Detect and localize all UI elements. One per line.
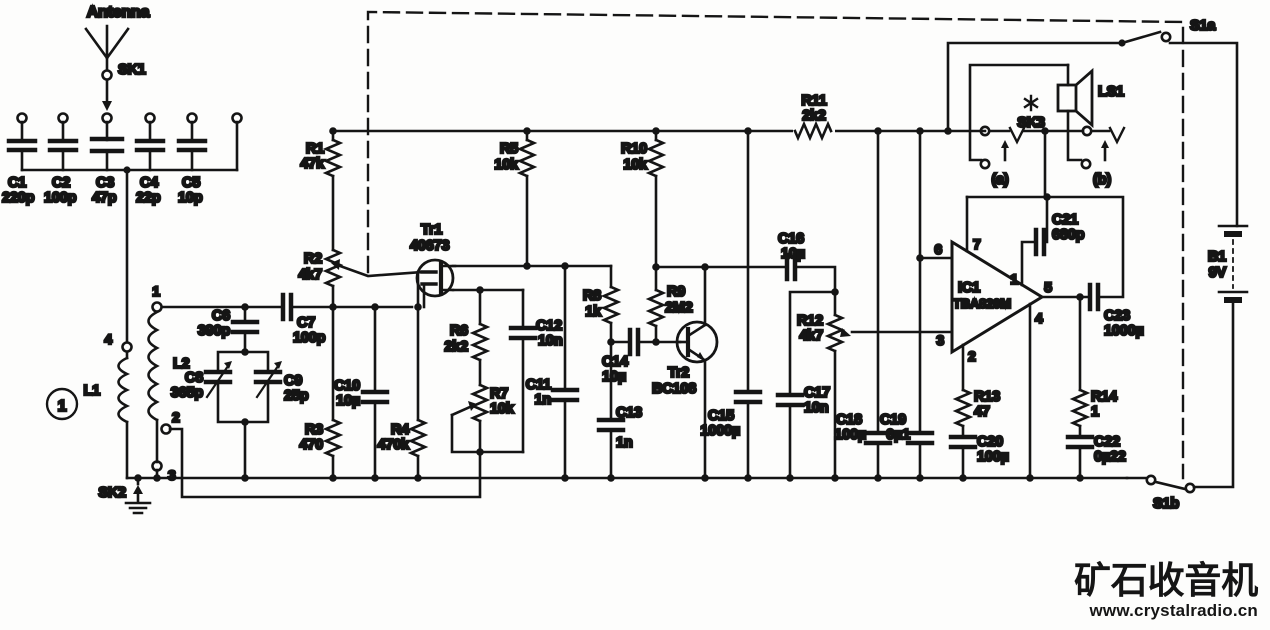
resistor-r9 <box>649 267 663 342</box>
c22-label: C22 <box>1094 434 1120 450</box>
r7-value: 10k <box>490 401 515 417</box>
c18-value: 100µ <box>834 427 866 443</box>
r4-label: R4 <box>391 422 409 438</box>
ic1-pin7: 7 <box>973 236 981 252</box>
c16-value: 10µ <box>781 246 805 262</box>
r6-label: R6 <box>450 323 468 339</box>
r7-label: R7 <box>490 386 508 402</box>
r2-value: 4k7 <box>298 267 322 283</box>
c7-label: C7 <box>297 315 315 331</box>
cap-c23 <box>1090 285 1098 309</box>
c12-label: C12 <box>536 318 562 334</box>
c2-value: 100p <box>44 190 77 206</box>
r13-value: 47 <box>974 404 990 420</box>
varicap-box-c8-c9 <box>206 352 282 478</box>
resistor-r2-pot <box>326 250 422 307</box>
r11-label: R11 <box>801 93 826 109</box>
c6-label: C6 <box>212 308 230 324</box>
c14-value: 10µ <box>602 369 626 385</box>
r8-value: 1k <box>585 304 602 320</box>
r3-label: R3 <box>305 422 323 438</box>
resistor-r12-pot <box>828 315 952 478</box>
c15-label: C15 <box>708 408 734 424</box>
l2-terminal-1: 1 <box>152 283 160 299</box>
r10-value: 10k <box>623 157 648 173</box>
c10-label: C10 <box>334 378 360 394</box>
c4-value: 22p <box>136 190 161 206</box>
c2-label: C2 <box>52 175 70 191</box>
c5-value: 10p <box>178 190 203 206</box>
c11-label: C11 <box>526 377 551 393</box>
r5-value: 10k <box>494 157 519 173</box>
l1-terminal-4: 4 <box>104 331 112 347</box>
resistor-r6 <box>473 290 487 385</box>
c21-value: 680p <box>1052 227 1085 243</box>
c19-value: 0µ1 <box>886 427 910 443</box>
tr2-label: Tr2 <box>668 365 689 381</box>
ic1-label: IC1 <box>958 280 980 296</box>
resistor-r7-pot <box>452 385 523 452</box>
cap-c11 <box>553 266 577 478</box>
r4-value: 470k <box>378 437 411 453</box>
ic1-pin3: 3 <box>936 332 944 348</box>
cap-c20 <box>951 437 975 478</box>
cap-c22 <box>1068 437 1092 478</box>
sk1-label: SK1 <box>118 62 146 78</box>
c21-label: C21 <box>1052 212 1078 228</box>
c14-label: C14 <box>602 354 628 370</box>
c10-value: 10µ <box>336 393 360 409</box>
watermark: 矿石收音机 www.crystalradio.cn <box>1074 560 1258 620</box>
c17-label: C17 <box>804 385 830 401</box>
c9-value: 25p <box>284 388 309 404</box>
r14-value: 1 <box>1091 404 1099 420</box>
ic1-part: TBA820M <box>953 296 1011 311</box>
jack-b-label: (b) <box>1093 172 1111 188</box>
ic1-pin6: 6 <box>934 241 942 257</box>
r8-label: R8 <box>583 288 601 304</box>
r13-label: R13 <box>974 389 1000 405</box>
r1-label: R1 <box>306 141 324 157</box>
c20-value: 100µ <box>977 449 1009 465</box>
coil-l2 <box>149 303 171 479</box>
resistor-r5 <box>520 131 534 266</box>
r2-label: R2 <box>304 251 322 267</box>
s1a-switch <box>1118 32 1237 226</box>
c7-value: 100p <box>293 330 326 346</box>
l1-label: L1 <box>83 383 100 399</box>
c8-value: 365p <box>171 385 204 401</box>
r9-value: 2M2 <box>665 300 693 316</box>
c15-value: 1000µ <box>700 423 740 439</box>
c3-value: 47p <box>92 190 117 206</box>
c19-label: C19 <box>880 412 906 428</box>
schematic-page: Antenna SK1 C1 220p C2 100p C3 47p C4 22… <box>0 0 1270 630</box>
resistor-r14 <box>1073 297 1087 437</box>
tr1-label: Tr1 <box>421 222 442 238</box>
c13-value: 1n <box>616 435 633 451</box>
b1-label: B1 <box>1208 249 1226 265</box>
c16-label: C16 <box>778 231 804 247</box>
c3-label: C3 <box>96 175 114 191</box>
cap-c16 <box>787 255 835 315</box>
cap-c14 <box>611 330 680 354</box>
cap-c19 <box>908 131 932 478</box>
c18-label: C18 <box>836 412 862 428</box>
cap-c7 <box>283 295 291 319</box>
sk2-ground-icon <box>126 478 150 513</box>
r14-label: R14 <box>1091 389 1117 405</box>
r10-label: R10 <box>621 141 647 157</box>
cap-c12 <box>511 290 535 452</box>
r9-label: R9 <box>667 284 685 300</box>
resistor-r1 <box>326 131 340 250</box>
r1-value: 47k <box>300 156 325 172</box>
c23-label: C23 <box>1104 308 1130 324</box>
resistor-r8 <box>604 266 618 342</box>
sk3-label: SK3 <box>1017 115 1045 131</box>
ic1-pin1: 1 <box>1010 271 1018 287</box>
antenna-label: Antenna <box>87 4 150 21</box>
watermark-url: www.crystalradio.cn <box>1088 601 1258 620</box>
r3-value: 470 <box>299 437 323 453</box>
c11-value: 1n <box>534 392 551 408</box>
r12-label: R12 <box>797 313 823 329</box>
c23-value: 1000µ <box>1104 323 1144 339</box>
c1-value: 220p <box>2 190 35 206</box>
resistor-r11 <box>795 124 831 138</box>
l2-terminal-2: 2 <box>172 409 180 425</box>
c20-label: C20 <box>977 434 1003 450</box>
schematic-canvas: Antenna SK1 C1 220p C2 100p C3 47p C4 22… <box>0 0 1270 630</box>
c5-label: C5 <box>182 175 200 191</box>
sk2-label: SK2 <box>98 485 126 501</box>
coil-l1 <box>119 343 132 479</box>
c12-value: 10n <box>538 333 562 349</box>
ic1-pin4: 4 <box>1035 310 1043 326</box>
l2-terminal-3: 3 <box>168 467 176 483</box>
c6-value: 390p <box>198 323 231 339</box>
c13-label: C13 <box>616 405 642 421</box>
regen-tap-wire <box>170 429 480 497</box>
figure-number: 1 <box>58 398 67 415</box>
resistor-r10 <box>649 131 663 267</box>
ls1-label: LS1 <box>1098 84 1124 100</box>
jack-a-label: (a) <box>991 172 1008 188</box>
r11-value: 2k2 <box>802 108 826 124</box>
c1-label: C1 <box>8 175 26 191</box>
s1a-label: S1a <box>1190 18 1216 34</box>
s1b-label: S1b <box>1153 496 1179 512</box>
b1-value: 9V <box>1209 265 1227 281</box>
tr2-part: BC108 <box>652 381 696 397</box>
c22-value: 0µ22 <box>1094 449 1126 465</box>
ic1-pin5: 5 <box>1044 279 1052 295</box>
r5-label: R5 <box>500 141 518 157</box>
cap-c6 <box>233 307 257 352</box>
cap-c21 <box>1036 197 1047 254</box>
c8-label: C8 <box>185 370 203 386</box>
c17-value: 10n <box>804 400 828 416</box>
tr1-part: 40673 <box>410 238 449 254</box>
r6-value: 2k2 <box>444 339 468 355</box>
ic1-pin2: 2 <box>968 348 976 364</box>
r12-value: 4k7 <box>799 328 823 344</box>
c4-label: C4 <box>140 175 158 191</box>
c9-label: C9 <box>284 373 302 389</box>
watermark-title: 矿石收音机 <box>1074 560 1258 601</box>
resistor-r13 <box>956 390 970 437</box>
